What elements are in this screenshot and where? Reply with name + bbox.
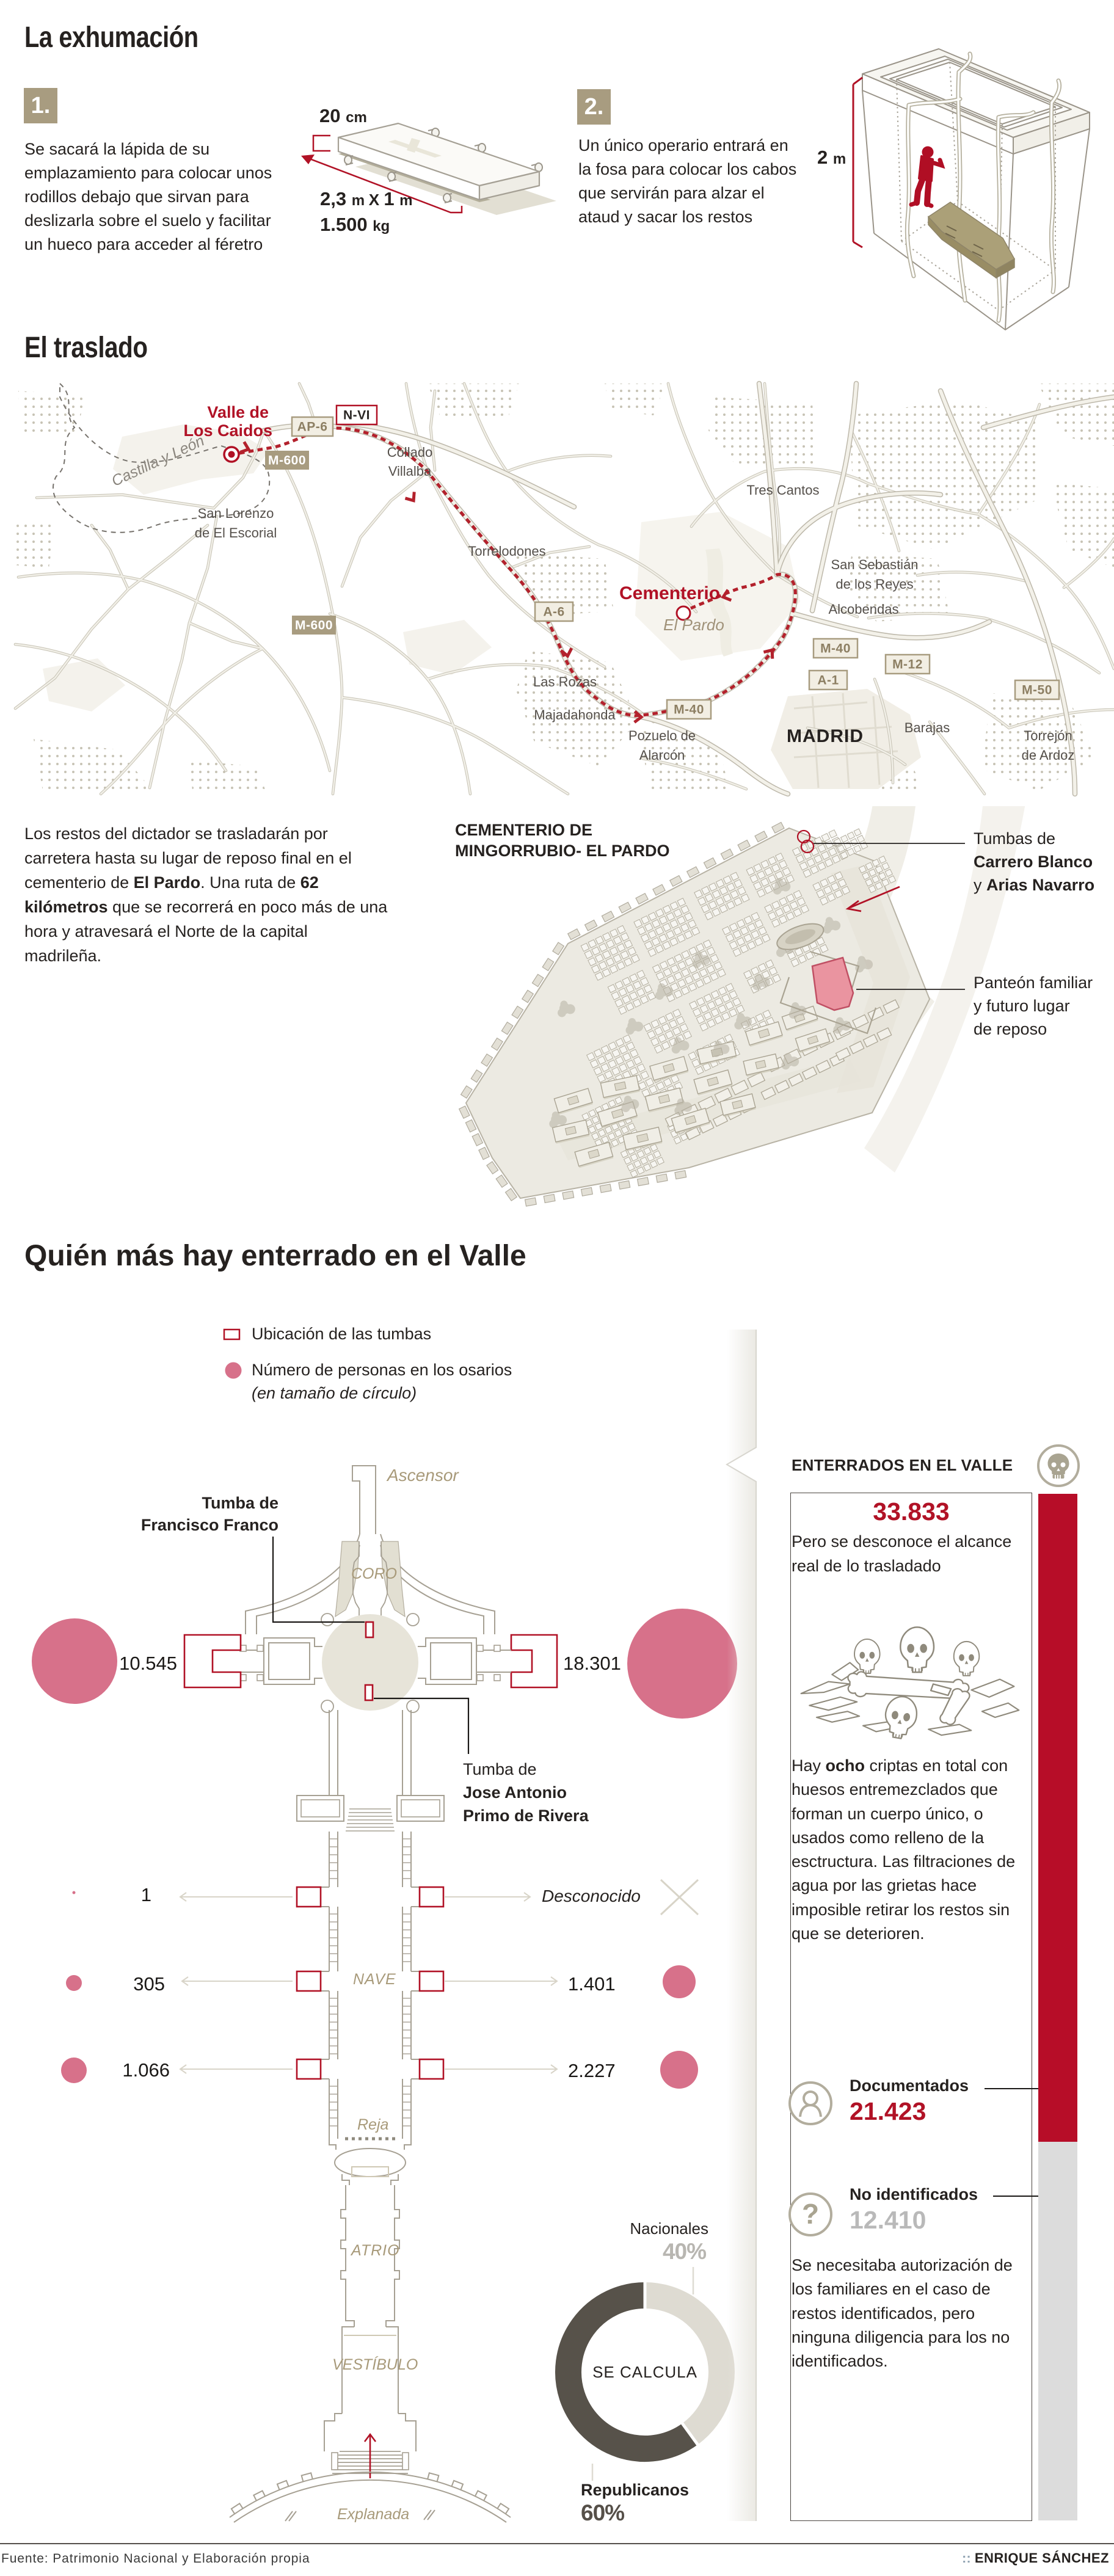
svg-text:SE CALCULA: SE CALCULA [592, 2363, 697, 2381]
svg-text:M-40: M-40 [674, 703, 704, 717]
svg-text:2.227: 2.227 [568, 2060, 616, 2081]
svg-text:(en tamaño de círculo): (en tamaño de círculo) [252, 1384, 417, 1402]
svg-text:A-6: A-6 [543, 605, 564, 619]
svg-text:M-50: M-50 [1022, 683, 1052, 697]
svg-text:El Pardo: El Pardo [663, 616, 724, 634]
svg-text:San Sebastián: San Sebastián [831, 557, 918, 572]
svg-text:10.545: 10.545 [119, 1653, 177, 1674]
svg-text:N-VI: N-VI [343, 409, 370, 423]
svg-text:de El Escorial: de El Escorial [195, 525, 277, 540]
svg-text:Alcobendas: Alcobendas [829, 602, 899, 617]
svg-text:M-12: M-12 [892, 658, 923, 672]
svg-text:Las Rozas: Las Rozas [533, 674, 597, 689]
svg-text:M-600: M-600 [295, 619, 333, 633]
svg-text:Número de personas en los osar: Número de personas en los osarios [252, 1361, 512, 1379]
svg-text:305: 305 [133, 1973, 165, 1995]
svg-text:M-600: M-600 [268, 454, 306, 468]
svg-text:Los Caidos: Los Caidos [183, 421, 272, 440]
svg-text:Torrejón: Torrejón [1024, 728, 1072, 743]
svg-text:Cementerio: Cementerio [619, 583, 720, 603]
svg-text:Villalba: Villalba [388, 464, 432, 479]
svg-text:MADRID: MADRID [787, 726, 864, 746]
svg-text:Majadahonda: Majadahonda [534, 707, 616, 722]
svg-text:Collado: Collado [387, 445, 433, 460]
svg-text:Barajas: Barajas [905, 720, 950, 735]
svg-text:Pozuelo de: Pozuelo de [628, 728, 696, 743]
svg-text:AP-6: AP-6 [297, 420, 328, 434]
svg-text:Tres Cantos: Tres Cantos [746, 482, 819, 498]
svg-text:San Lorenzo: San Lorenzo [198, 506, 274, 521]
svg-text:Valle de: Valle de [207, 403, 269, 421]
svg-text:de Ardoz: de Ardoz [1022, 748, 1075, 763]
svg-text:1: 1 [141, 1884, 151, 1905]
svg-text:18.301: 18.301 [563, 1653, 621, 1674]
svg-text:Ubicación de las tumbas: Ubicación de las tumbas [252, 1325, 431, 1343]
svg-text:A-1: A-1 [817, 674, 839, 688]
svg-text:Torrelodones: Torrelodones [468, 544, 545, 559]
svg-text:de los Reyes: de los Reyes [835, 577, 913, 592]
svg-text:1.066: 1.066 [122, 2059, 170, 2081]
svg-text:?: ? [802, 2198, 819, 2230]
svg-text:1.401: 1.401 [568, 1973, 616, 1995]
svg-text:Alarcón: Alarcón [639, 748, 685, 763]
svg-text:M-40: M-40 [820, 642, 851, 656]
svg-text:Desconocido: Desconocido [542, 1887, 641, 1905]
